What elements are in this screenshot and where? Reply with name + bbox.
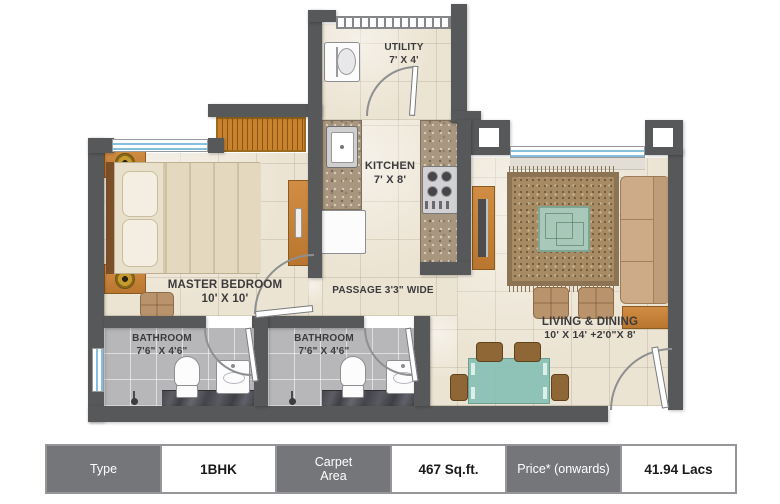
master-bedroom-label: MASTER BEDROOM 10' X 10' <box>140 278 310 307</box>
spec-header-price: Price* (onwards) <box>505 446 620 492</box>
room-name: MASTER BEDROOM <box>140 278 310 292</box>
shower-drain-icon <box>131 398 138 405</box>
washer-drum <box>337 48 356 75</box>
burner-icon <box>441 171 452 182</box>
passage-label: PASSAGE 3'3" WIDE <box>318 285 448 298</box>
toilet-tank <box>176 385 198 398</box>
wall <box>308 10 322 278</box>
wall <box>88 406 608 422</box>
bathroom2-label: BATHROOM 7'6" X 4'6" <box>272 333 376 358</box>
sofa-cushion-line <box>621 261 654 262</box>
dining-table <box>468 358 550 404</box>
wall <box>457 120 471 262</box>
wall <box>88 138 114 153</box>
sink-drain <box>340 145 344 149</box>
dining-chair <box>450 374 468 401</box>
wall <box>451 4 467 123</box>
dining-chair <box>514 342 541 362</box>
spec-value-type: 1BHK <box>160 446 275 492</box>
dining-chair <box>476 342 503 362</box>
bathroom1-label: BATHROOM 7'6" X 4'6" <box>110 333 214 358</box>
room-dims: 7' X 4' <box>368 55 440 68</box>
toilet <box>340 356 366 387</box>
wall <box>208 104 322 117</box>
table-bracket <box>471 387 475 399</box>
bed-headboard <box>106 162 114 274</box>
window <box>92 348 104 392</box>
room-name: BATHROOM <box>110 333 214 346</box>
pillow <box>122 171 158 217</box>
wardrobe <box>216 117 306 152</box>
room-name: LIVING & DINING <box>505 315 675 329</box>
spec-value-carpet-area: 467 Sq.ft. <box>390 446 505 492</box>
coffee-table-detail <box>556 222 584 246</box>
table-bracket <box>543 387 547 399</box>
dresser-handle <box>295 208 302 238</box>
sofa-back <box>653 177 669 303</box>
tv-icon <box>478 199 488 257</box>
washing-machine <box>324 42 360 82</box>
room-name: PASSAGE 3'3" WIDE <box>318 285 448 298</box>
pillow <box>122 219 158 267</box>
sofa <box>620 176 670 304</box>
utility-label: UTILITY 7' X 4' <box>368 42 440 67</box>
dining-chair <box>551 374 569 401</box>
wall <box>254 316 268 406</box>
wall <box>308 10 336 22</box>
room-dims: 7'6" X 4'6" <box>272 346 376 359</box>
kitchen-label: KITCHEN 7' X 8' <box>352 160 428 188</box>
spec-header-carpet-area: Carpet Area <box>275 446 390 492</box>
room-name: KITCHEN <box>352 160 428 174</box>
column-hole <box>479 128 499 147</box>
wall <box>104 316 206 328</box>
wall <box>208 138 224 153</box>
spec-value-price: 41.94 Lacs <box>620 446 735 492</box>
sofa-cushion-line <box>621 219 654 220</box>
stove-knobs <box>425 201 453 209</box>
dresser <box>288 180 310 266</box>
wall <box>252 316 364 328</box>
wall <box>414 316 430 406</box>
toilet <box>174 356 200 387</box>
burner-icon <box>427 171 438 182</box>
washer-door-line <box>336 47 338 77</box>
spec-header-type: Type <box>47 446 160 492</box>
refrigerator <box>320 210 366 254</box>
room-dims: 10' X 14' +2'0"X 8' <box>505 329 675 342</box>
blanket <box>163 163 261 273</box>
room-name: BATHROOM <box>272 333 376 346</box>
coffee-table <box>538 206 590 252</box>
room-name: UTILITY <box>368 42 440 55</box>
burner-icon <box>427 186 438 197</box>
table-bracket <box>543 363 547 375</box>
room-dims: 10' X 10' <box>140 292 310 306</box>
room-dims: 7' X 8' <box>352 174 428 188</box>
floor-plan: UTILITY 7' X 4' KITCHEN 7' X 8' MASTER B… <box>0 0 780 440</box>
toilet-tank <box>342 385 364 398</box>
table-bracket <box>471 363 475 375</box>
column-hole <box>653 128 673 147</box>
room-dims: 7'6" X 4'6" <box>110 346 214 359</box>
window <box>112 139 208 152</box>
shower-drain-icon <box>289 398 296 405</box>
wall <box>420 262 471 275</box>
ventilation-grill <box>336 16 451 29</box>
double-bed <box>114 162 260 274</box>
tv-unit <box>472 186 495 270</box>
living-dining-label: LIVING & DINING 10' X 14' +2'0"X 8' <box>505 315 675 343</box>
spec-table: Type 1BHK Carpet Area 467 Sq.ft. Price* … <box>45 444 737 494</box>
window <box>510 146 645 158</box>
burner-icon <box>441 186 452 197</box>
